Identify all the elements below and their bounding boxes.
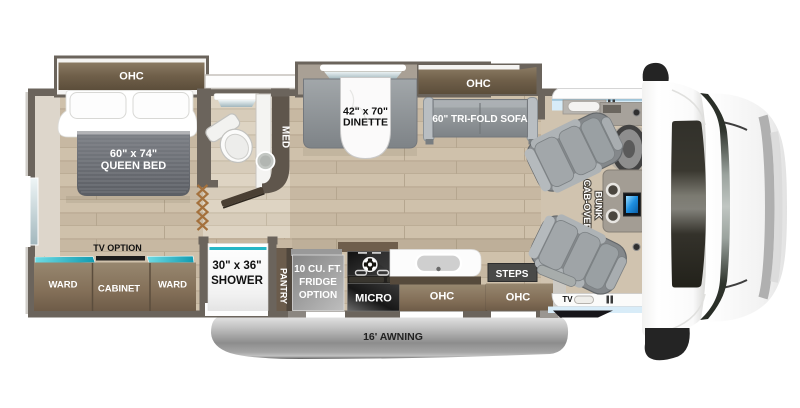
- svg-text:FRIDGE: FRIDGE: [299, 277, 337, 288]
- svg-text:DINETTE: DINETTE: [343, 117, 388, 129]
- svg-text:WARD: WARD: [48, 280, 77, 291]
- svg-text:60" x 74": 60" x 74": [110, 148, 157, 160]
- svg-text:16' AWNING: 16' AWNING: [363, 331, 423, 343]
- svg-text:TV: TV: [562, 295, 573, 304]
- svg-text:OHC: OHC: [506, 292, 531, 304]
- svg-text:CABINET: CABINET: [98, 284, 140, 295]
- svg-text:MED: MED: [280, 126, 291, 148]
- svg-text:WARD: WARD: [158, 280, 187, 291]
- svg-text:QUEEN BED: QUEEN BED: [101, 160, 166, 172]
- svg-text:MICRO: MICRO: [355, 293, 392, 305]
- svg-text:OHC: OHC: [430, 291, 455, 303]
- svg-text:BUNK: BUNK: [593, 191, 604, 219]
- svg-text:SHOWER: SHOWER: [211, 275, 263, 287]
- svg-text:OHC: OHC: [466, 78, 491, 90]
- svg-text:TV OPTION: TV OPTION: [93, 243, 142, 253]
- svg-text:60" TRI-FOLD SOFA: 60" TRI-FOLD SOFA: [432, 114, 527, 125]
- svg-text:10 CU. FT.: 10 CU. FT.: [294, 264, 342, 275]
- svg-text:30" x 36": 30" x 36": [212, 260, 261, 272]
- svg-text:PANTRY: PANTRY: [279, 268, 289, 304]
- svg-text:CAB-OVER: CAB-OVER: [581, 180, 592, 231]
- svg-text:STEPS: STEPS: [496, 269, 529, 280]
- svg-text:OPTION: OPTION: [299, 290, 337, 301]
- svg-text:OHC: OHC: [119, 71, 144, 83]
